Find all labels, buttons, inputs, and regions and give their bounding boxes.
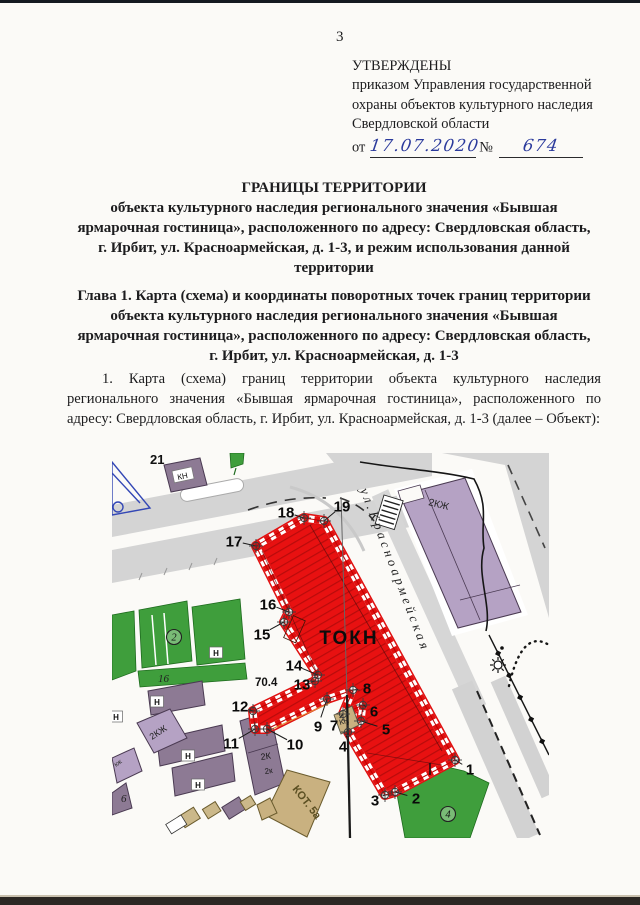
- number-underline: 674: [499, 138, 583, 158]
- point-number-label: 9: [314, 719, 322, 736]
- approval-line: приказом Управления государственной: [352, 76, 614, 95]
- point-number-label: 4: [339, 739, 348, 756]
- handwritten-number: 674: [522, 136, 561, 155]
- point-number-label: 10: [287, 737, 304, 754]
- chapter-line: объекта культурного наследия регионально…: [34, 306, 634, 326]
- point-number-label: 12: [232, 699, 249, 716]
- territory-map: ул.КрасноармейскаяТОКН70.4212КЖКН2КЖ2К2к…: [112, 453, 549, 838]
- approval-line: охраны объектов культурного наследия: [352, 96, 614, 115]
- title-line: ярмарочная гостиница», расположенного по…: [34, 218, 634, 238]
- parcel-6-label: 6: [121, 793, 127, 805]
- point-number-label: 8: [363, 681, 371, 698]
- date-underline: 17.07.2020: [370, 138, 476, 158]
- n-chip-label: Н: [213, 649, 219, 658]
- date-prefix: от: [352, 139, 365, 155]
- point-number-label: 15: [254, 627, 271, 644]
- point-number-label: 19: [334, 499, 351, 516]
- page-number: 3: [336, 29, 344, 46]
- title-line: территории: [34, 258, 634, 278]
- approval-line: Свердловской области: [352, 115, 614, 134]
- territory-label: ТОКН: [319, 628, 378, 649]
- scan-edge-top: [0, 0, 640, 3]
- n-chip-label: Н: [113, 713, 119, 722]
- approval-block: УТВЕРЖДЕНЫ приказом Управления государст…: [352, 57, 614, 158]
- chapter-line: г. Ирбит, ул. Красноармейская, д. 1-3: [34, 346, 634, 366]
- title-heading: ГРАНИЦЫ ТЕРРИТОРИИ: [34, 178, 634, 198]
- document-title: ГРАНИЦЫ ТЕРРИТОРИИ объекта культурного н…: [34, 178, 634, 278]
- scan-edge-bottom: [0, 895, 640, 905]
- n-chip-label: Н: [154, 698, 160, 707]
- circled-number-label: 4: [445, 810, 451, 821]
- number-sign: №: [479, 139, 493, 155]
- circled-number-label: 2: [171, 633, 177, 644]
- handwritten-date: 17.07.2020: [369, 136, 481, 155]
- n-chip-label: Н: [185, 752, 191, 761]
- title-line: г. Ирбит, ул. Красноармейская, д. 1-3, и…: [34, 238, 634, 258]
- point-number-label: 16: [260, 597, 277, 614]
- point-number-label: 6: [370, 704, 378, 721]
- title-line: объекта культурного наследия регионально…: [34, 198, 634, 218]
- n-chip-label: Н: [195, 781, 201, 790]
- chapter-heading: Глава 1. Карта (схема) и координаты пово…: [34, 286, 634, 366]
- map-svg: ул.КрасноармейскаяТОКН70.4212КЖКН2КЖ2К2к…: [112, 453, 549, 838]
- point-number-label: 2: [412, 791, 420, 808]
- parcel-21-label: 21: [150, 453, 164, 467]
- elevation-label: 70.4: [255, 677, 278, 689]
- paragraph-1: 1. Карта (схема) границ территории объек…: [67, 369, 601, 430]
- parcel-16-label: 16: [158, 673, 170, 685]
- point-number-label: 3: [371, 793, 379, 810]
- streetlight-icon: [490, 657, 506, 673]
- chapter-line: Глава 1. Карта (схема) и координаты пово…: [34, 286, 634, 306]
- point-number-label: 18: [278, 505, 295, 522]
- point-number-label: 13: [294, 677, 311, 694]
- chapter-line: ярмарочная гостиница», расположенного по…: [34, 326, 634, 346]
- approval-status: УТВЕРЖДЕНЫ: [352, 57, 614, 76]
- small-outbuildings: [166, 796, 256, 834]
- document-page: 3 УТВЕРЖДЕНЫ приказом Управления государ…: [0, 0, 640, 905]
- point-number-label: 1: [466, 762, 474, 779]
- point-number-label: 11: [223, 736, 239, 753]
- point-number-label: 14: [286, 658, 303, 675]
- point-number-label: 5: [382, 722, 390, 739]
- approval-date-row: от17.07.2020№674: [352, 138, 614, 158]
- point-number-label: 17: [226, 534, 243, 551]
- point-number-label: 7: [330, 718, 338, 735]
